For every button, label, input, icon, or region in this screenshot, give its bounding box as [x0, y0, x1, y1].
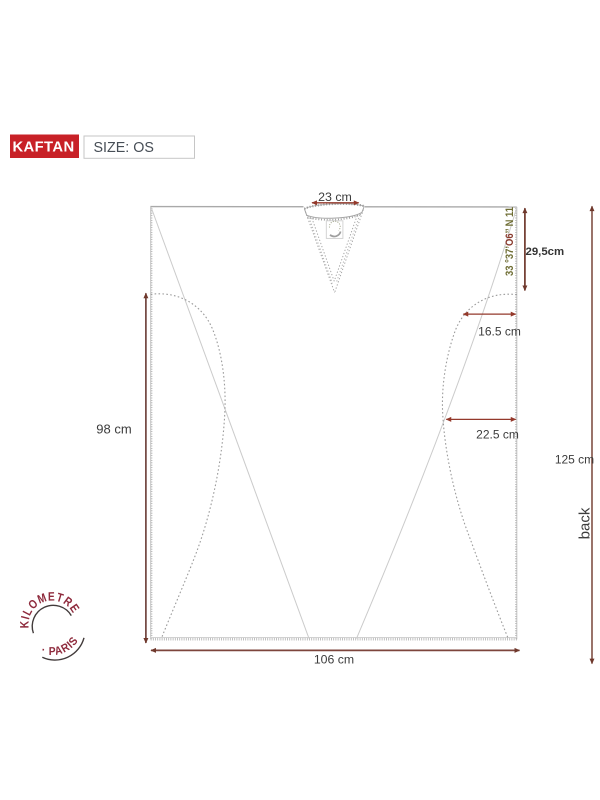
svg-text:98 cm: 98 cm: [96, 422, 131, 437]
svg-text:29,5cm: 29,5cm: [526, 246, 565, 258]
svg-text:KILOMETRE: KILOMETRE: [18, 590, 83, 629]
svg-text:23 cm: 23 cm: [318, 190, 352, 204]
svg-text:SIZE: OS: SIZE: OS: [94, 140, 154, 156]
svg-text:· PARIS: · PARIS: [40, 635, 81, 658]
svg-text:125 cm: 125 cm: [555, 453, 594, 467]
svg-text:KAFTAN: KAFTAN: [12, 140, 74, 156]
svg-text:106 cm: 106 cm: [314, 652, 354, 666]
svg-text:back: back: [577, 507, 594, 539]
svg-text:16.5 cm: 16.5 cm: [478, 325, 521, 339]
svg-text:33 °37’O6’’ N 11: 33 °37’O6’’ N 11: [504, 207, 516, 276]
svg-text:22.5 cm: 22.5 cm: [476, 428, 519, 442]
